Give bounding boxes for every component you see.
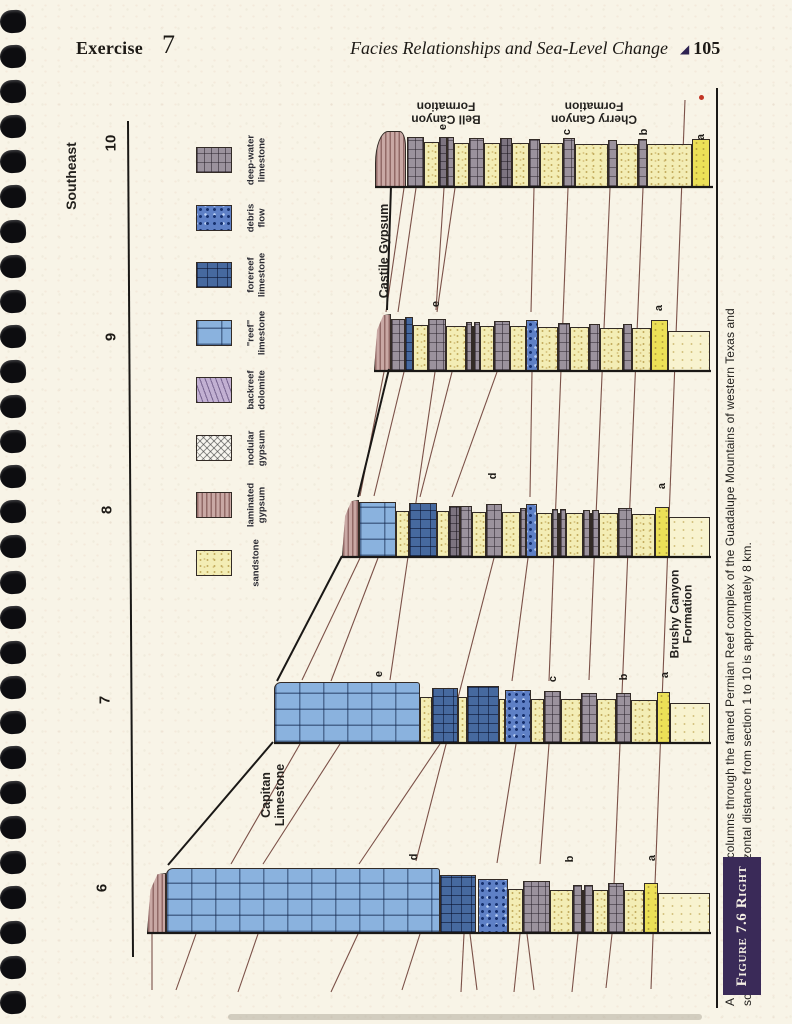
legend-label: sandstone — [252, 539, 263, 587]
section-number-10: 10 — [104, 135, 121, 152]
binding-loop — [0, 79, 27, 103]
lith-block-gray — [638, 139, 647, 187]
lith-block-gray — [623, 324, 632, 371]
binding-loop — [0, 430, 27, 454]
binding-loop — [0, 605, 27, 629]
binding-loop — [0, 184, 27, 208]
lith-block-sandP — [658, 893, 710, 933]
bed-label-b: b — [638, 129, 650, 136]
lith-block-gray — [460, 506, 472, 557]
running-title: Facies Relationships and Sea-Level Chang… — [350, 38, 668, 59]
bed-label-e: e — [430, 301, 442, 307]
binding-loop — [0, 710, 27, 734]
bed-label-c: c — [547, 676, 559, 682]
binding-loop — [0, 990, 27, 1014]
lith-block-sand — [570, 327, 589, 371]
binding-loop — [0, 220, 27, 244]
unit-label: Bell Canyon Formation — [411, 99, 480, 126]
legend-swatch-lam — [196, 492, 232, 518]
lith-block-fore — [467, 686, 499, 743]
lith-block-fore — [432, 688, 458, 743]
lith-block-gray — [618, 508, 632, 557]
binding-loop — [0, 815, 27, 839]
lith-block-gray — [486, 504, 502, 557]
lith-block-debris — [526, 320, 538, 371]
binding-loop — [0, 325, 27, 349]
lith-block-gray — [469, 138, 484, 187]
lith-block-gray — [391, 319, 405, 371]
lith-block-sand — [561, 699, 581, 743]
lith-block-grayD — [449, 506, 460, 557]
lith-block-sand — [600, 328, 623, 371]
lith-block-sand — [647, 144, 692, 187]
red-mark — [699, 95, 704, 100]
binding-loop — [0, 465, 27, 489]
lith-block-fore — [409, 503, 437, 557]
legend-label: laminated gypsum — [246, 483, 267, 527]
lith-block-sand — [575, 144, 608, 187]
binding-loop — [0, 920, 27, 944]
lith-block-gray — [563, 138, 575, 187]
lith-block-reef — [274, 682, 420, 743]
lith-block-fore — [440, 875, 476, 933]
bed-label-c: c — [561, 129, 573, 135]
lith-block-sand — [510, 326, 526, 371]
legend-swatch-gray — [196, 147, 232, 173]
lith-block-gray — [407, 137, 424, 187]
legend-swatch-dol — [196, 377, 232, 403]
lith-block-lam — [374, 314, 391, 371]
lith-block-debris — [505, 690, 531, 743]
lith-block-gray — [608, 140, 617, 187]
lith-block-sand — [624, 890, 644, 933]
lith-block-gray — [589, 324, 600, 371]
bed-label-a: a — [659, 672, 671, 678]
legend-swatch-nod — [196, 435, 232, 461]
lith-block-sand — [454, 143, 469, 187]
unit-label: Cherry Canyon Formation — [551, 99, 637, 126]
section-number-9: 9 — [104, 333, 121, 341]
bed-label-d: d — [408, 854, 420, 861]
binding-loop — [0, 570, 27, 594]
legend-swatch-sand — [196, 550, 232, 576]
lith-block-sand — [446, 326, 466, 371]
binding-loop — [0, 535, 27, 559]
lith-block-sand — [550, 890, 573, 933]
triangle-marker-icon: ◢ — [680, 43, 689, 55]
lith-block-gray — [529, 139, 540, 187]
lith-block-fore — [405, 317, 413, 371]
lith-block-sandA — [644, 883, 658, 933]
lith-block-sand — [472, 512, 486, 557]
binding-loop — [0, 395, 27, 419]
exercise-number: 7 — [162, 30, 175, 60]
lith-block-gray — [608, 883, 624, 933]
lith-block-sand — [632, 514, 655, 557]
lith-block-sand — [531, 699, 544, 743]
unit-label: Brushy Canyon Formation — [669, 570, 696, 659]
lith-block-gray — [592, 510, 599, 557]
lith-block-sandP — [668, 331, 710, 371]
legend-swatch-reef — [196, 320, 232, 346]
page-number-block: ◢ 105 — [680, 38, 720, 59]
lith-block-grayD — [500, 138, 512, 187]
lith-block-sand — [540, 143, 563, 187]
lith-block-sand — [537, 513, 552, 557]
binding-loop — [0, 255, 27, 279]
lith-block-sandA — [692, 139, 710, 187]
lith-block-gray — [583, 510, 590, 557]
lith-block-gray — [428, 319, 446, 371]
figure-label: Figure 7.6 Right — [734, 866, 751, 987]
legend-label: forereef limestone — [246, 253, 267, 297]
exercise-label: Exercise — [76, 38, 143, 59]
binding-loop — [0, 114, 27, 138]
section-number-6: 6 — [95, 884, 112, 892]
binding-loop — [0, 885, 27, 909]
lith-block-sand — [512, 143, 529, 187]
unit-label: Southeast — [64, 142, 80, 210]
binding-loop — [0, 745, 27, 769]
lith-block-gray — [581, 693, 597, 743]
unit-label: Capitan Limestone — [259, 764, 287, 827]
binding-loop — [0, 500, 27, 524]
lith-block-sand — [413, 325, 428, 371]
lith-block-lam — [342, 500, 359, 557]
spiral-binding — [0, 0, 30, 1024]
page-header: Exercise 7 Facies Relationships and Sea-… — [0, 0, 792, 70]
lith-block-sand — [538, 327, 558, 371]
binding-loop — [0, 955, 27, 979]
lith-block-grayD — [439, 137, 447, 187]
lith-block-sand — [396, 511, 409, 557]
binding-loop — [0, 780, 27, 804]
lith-block-gray — [573, 885, 582, 933]
lith-block-sand — [597, 699, 616, 743]
binding-loop — [0, 360, 27, 384]
binding-loop — [0, 850, 27, 874]
caption-divider-rule — [716, 88, 718, 1008]
bed-label-a: a — [695, 134, 707, 140]
lith-block-sandA — [651, 320, 668, 371]
lith-block-gray — [523, 881, 550, 933]
bed-label-a: a — [656, 483, 668, 489]
lith-block-sandA — [657, 692, 670, 743]
lith-block-reef — [166, 868, 440, 933]
lith-block-sand — [437, 511, 449, 557]
lith-block-gray — [494, 321, 510, 371]
page-number: 105 — [693, 38, 720, 59]
lith-block-reef — [359, 502, 396, 557]
bed-label-d: d — [487, 473, 499, 480]
lith-block-debris — [526, 504, 537, 557]
legend-label: nodular gypsum — [246, 430, 267, 466]
binding-loop — [0, 290, 27, 314]
lith-block-gray — [544, 691, 561, 743]
unit-label: Castile Gypsum — [377, 204, 391, 298]
legend-label: deep-water limestone — [246, 135, 267, 185]
lith-block-sand — [458, 697, 467, 743]
bed-label-b: b — [564, 856, 576, 863]
lith-block-sand — [424, 142, 439, 187]
figure-label-box: Figure 7.6 Right — [723, 857, 761, 995]
legend-label: backreef dolomite — [246, 370, 267, 410]
binding-loop — [0, 9, 27, 33]
lith-block-sand — [599, 513, 618, 557]
lith-block-sand — [631, 700, 657, 743]
lith-block-sand — [566, 513, 583, 557]
legend-label: debris flow — [246, 204, 267, 233]
section-number-8: 8 — [100, 506, 117, 514]
legend-label: "reef" limestone — [246, 311, 267, 355]
section-number-7: 7 — [98, 696, 115, 704]
bed-label-b: b — [618, 674, 630, 681]
binding-loop — [0, 640, 27, 664]
binding-loop — [0, 44, 27, 68]
lith-block-lam — [147, 873, 166, 933]
lith-block-sand — [508, 889, 523, 933]
lith-block-sand — [593, 890, 608, 933]
lith-block-sand — [632, 328, 651, 371]
lith-block-sand — [480, 326, 494, 371]
lith-block-gray — [558, 323, 570, 371]
legend-swatch-debris — [196, 205, 232, 231]
bed-label-e: e — [373, 671, 385, 677]
lith-block-sand — [420, 697, 432, 743]
lith-block-sand — [502, 512, 520, 557]
lith-block-lam — [375, 131, 406, 187]
legend-swatch-fore — [196, 262, 232, 288]
scan-shadow — [228, 1014, 702, 1020]
binding-loop — [0, 675, 27, 699]
lith-block-gray — [584, 885, 593, 933]
binding-loop — [0, 149, 27, 173]
lith-block-sandA — [655, 507, 669, 557]
lith-block-sand — [484, 143, 500, 187]
bed-label-a: a — [653, 305, 665, 311]
bed-label-a: a — [646, 855, 658, 861]
lith-block-debris — [478, 879, 508, 933]
lith-block-sandP — [670, 703, 710, 743]
lith-block-sandP — [669, 517, 710, 557]
lith-block-sand — [617, 144, 638, 187]
stratigraphic-figure: 109876ecbaeadaecbadbaSoutheastCastile Gy… — [0, 0, 792, 1024]
lith-block-gray — [447, 137, 454, 187]
lith-block-gray — [616, 693, 631, 743]
